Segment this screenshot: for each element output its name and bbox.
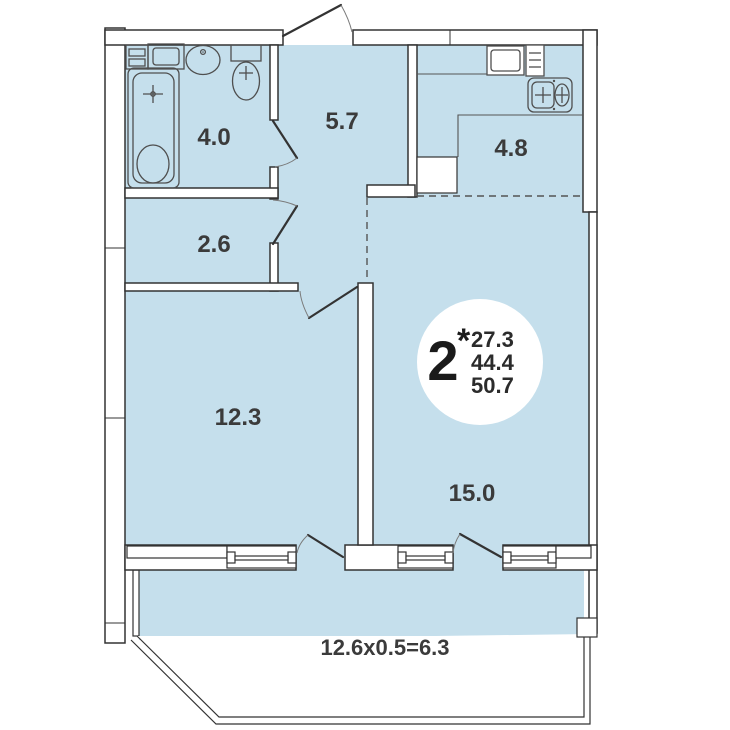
badge-asterisk: * xyxy=(457,322,471,360)
right-wall-upper xyxy=(583,30,597,212)
floorplan: 4.0 5.7 4.8 2.6 12.3 15.0 12.6x0.5=6.3 2… xyxy=(0,0,730,730)
bedroom-window xyxy=(227,546,296,568)
badge-area-1: 27.3 xyxy=(471,327,514,352)
apartment-info-badge: 2 * 27.3 44.4 50.7 xyxy=(417,299,543,425)
kitchen-cabinet xyxy=(417,157,457,193)
living-area-label: 15.0 xyxy=(449,480,496,507)
badge-room-count: 2 xyxy=(427,329,458,392)
kitchen-side-window xyxy=(503,546,556,568)
badge-area-3: 50.7 xyxy=(471,373,514,398)
badge-area-2: 44.4 xyxy=(471,350,515,375)
balcony-dimension-label: 12.6x0.5=6.3 xyxy=(320,635,449,660)
hallway-stub-wall xyxy=(367,185,415,197)
bedroom-area-label: 12.3 xyxy=(215,404,262,431)
hallway-area-label: 5.7 xyxy=(325,108,358,135)
window-sill-right xyxy=(556,546,591,558)
bathroom-wall-upper xyxy=(270,45,278,120)
left-wall xyxy=(105,28,125,643)
top-wall-left xyxy=(105,30,283,45)
hallway-kitchen-divider xyxy=(408,45,417,197)
bathroom-closet-divider xyxy=(125,188,278,198)
closet-bedroom-divider xyxy=(125,283,298,291)
living-window xyxy=(398,546,453,568)
window-sill-left xyxy=(127,546,227,558)
kitchen-stove xyxy=(487,46,524,75)
floorplan-page: 4.0 5.7 4.8 2.6 12.3 15.0 12.6x0.5=6.3 2… xyxy=(0,0,730,730)
closet-area-label: 2.6 xyxy=(197,231,230,258)
entrance-door xyxy=(283,5,352,36)
bedroom-living-divider xyxy=(358,283,373,545)
balcony-left-partition xyxy=(133,570,139,636)
right-wall-endcap xyxy=(577,618,597,637)
top-wall-right xyxy=(353,30,597,45)
kitchen-appliance xyxy=(526,45,544,76)
bathroom-area-label: 4.0 xyxy=(197,124,230,151)
kitchen-area-label: 4.8 xyxy=(494,135,527,162)
